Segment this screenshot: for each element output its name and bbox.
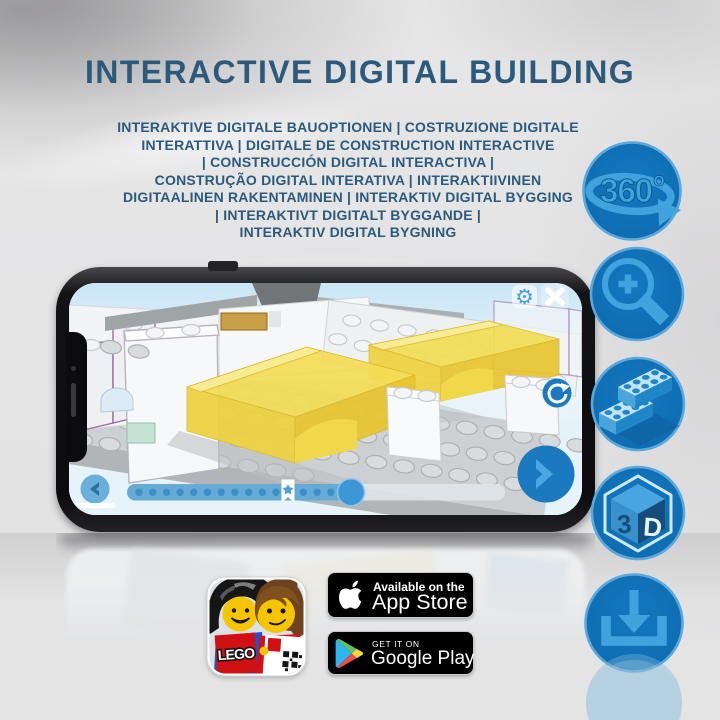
svg-text:LEGO: LEGO (217, 645, 255, 664)
svg-text:360: 360 (600, 172, 652, 209)
svg-text:D: D (642, 511, 663, 542)
svg-text:3: 3 (616, 509, 633, 540)
svg-text:o: o (653, 170, 665, 191)
svg-text:⚙: ⚙ (515, 286, 534, 309)
